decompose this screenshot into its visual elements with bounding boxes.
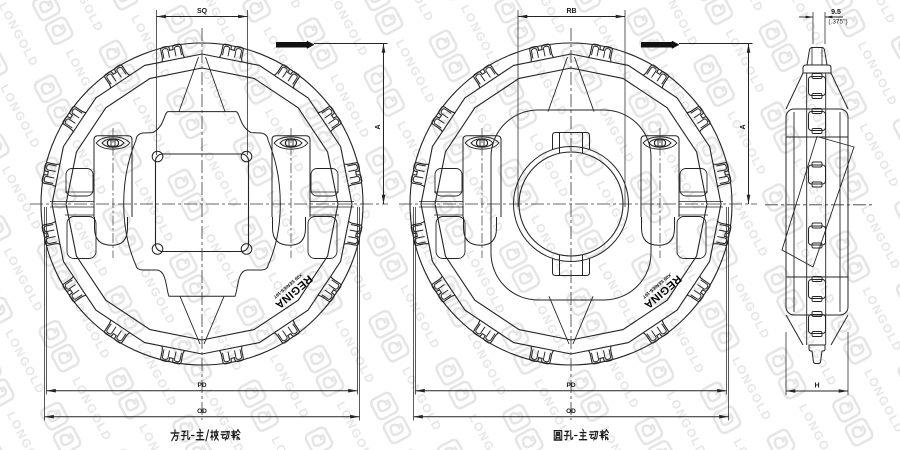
- svg-text:PD: PD: [566, 382, 575, 389]
- svg-text:OD: OD: [566, 408, 576, 415]
- svg-text:SQ: SQ: [197, 8, 208, 15]
- svg-text:RB: RB: [566, 8, 576, 15]
- svg-text:H: H: [814, 383, 819, 390]
- svg-text:PD: PD: [197, 382, 206, 389]
- svg-text:9.5: 9.5: [831, 9, 841, 16]
- svg-text:A: A: [740, 124, 747, 129]
- svg-text:OD: OD: [197, 408, 207, 415]
- svg-text:A: A: [375, 124, 382, 129]
- svg-text:(.375"): (.375"): [828, 19, 847, 26]
